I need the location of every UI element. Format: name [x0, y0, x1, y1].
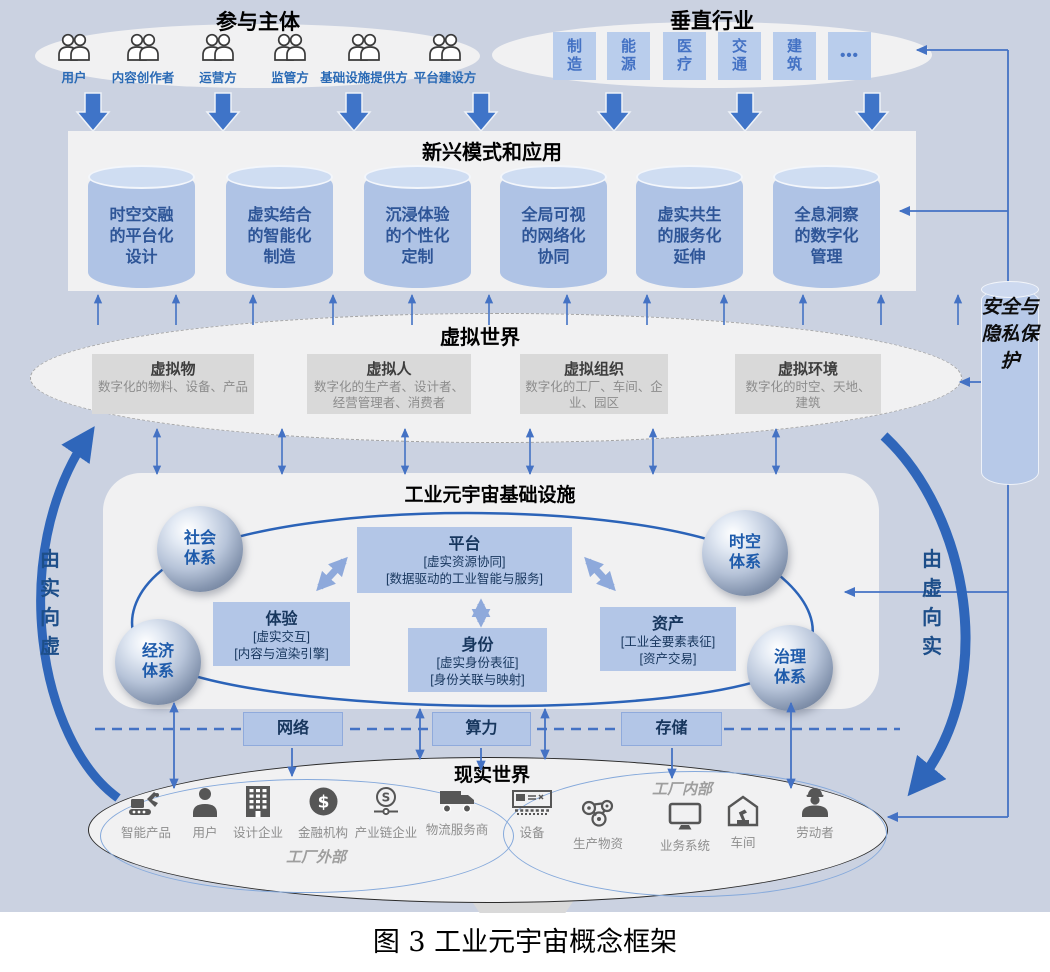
module-title: 身份: [408, 631, 547, 655]
virtual-box-title: 虚拟人: [312, 358, 466, 379]
virtual-box-title: 虚拟物: [97, 358, 249, 379]
industry-box: 交 通: [718, 32, 761, 80]
real-world-item: 智能产品: [114, 787, 178, 841]
virtual-box-desc: 数字化的物料、设备、产品: [97, 379, 249, 395]
industries-title: 垂直行业: [632, 5, 792, 35]
real-world-item: $ 金融机构: [291, 786, 355, 841]
economic-system-sphere: 经济 体系: [115, 619, 201, 705]
building-icon: [245, 785, 271, 817]
real-world-item-label: 物流服务商: [424, 819, 490, 838]
participant-item: 平台建设方: [400, 33, 490, 86]
applications-title: 新兴模式和应用: [392, 136, 592, 165]
worker-icon: [800, 786, 830, 817]
real-world-item: 设备: [499, 789, 565, 841]
coin-icon: $: [308, 786, 339, 817]
application-label: 虚实结合 的智能化 制造: [226, 177, 333, 288]
real-world-item-label: 业务系统: [652, 835, 718, 854]
people-icon: [271, 33, 309, 61]
industry-box: 能 源: [607, 32, 650, 80]
industry-box: 制 造: [553, 32, 596, 80]
excavator-icon: [127, 787, 165, 817]
real-world-item-label: 智能产品: [114, 822, 178, 841]
social-system-sphere: 社会 体系: [157, 506, 243, 592]
storage-box: 存储: [621, 712, 722, 746]
virtual-world-title: 虚拟世界: [390, 321, 570, 350]
people-icon: [124, 33, 162, 61]
machine-icon: [512, 789, 552, 817]
real-world-item-label: 金融机构: [291, 822, 355, 841]
real-world-item-label: 设计企业: [226, 822, 290, 841]
application-label: 时空交融 的平台化 设计: [88, 177, 195, 288]
svg-text:S: S: [382, 791, 391, 805]
application-cylinder: 全息洞察 的数字化 管理: [773, 165, 880, 288]
participants-title: 参与主体: [178, 6, 338, 36]
asset-module: 资产 [工业全要素表征] [资产交易]: [600, 607, 736, 671]
virtual-environment-box: 虚拟环境 数字化的时空、天地、建筑: [735, 354, 881, 414]
cylinder-lid: [226, 165, 333, 189]
truck-icon: [439, 789, 476, 814]
virtual-box-desc: 数字化的生产者、设计者、经营管理者、消费者: [312, 379, 466, 411]
virtual-object-box: 虚拟物 数字化的物料、设备、产品: [92, 354, 254, 414]
real-world-item-label: 设备: [499, 822, 565, 841]
real-world-item: 物流服务商: [424, 789, 490, 838]
application-label: 全局可视 的网络化 协同: [500, 177, 607, 288]
real-world-item: 设计企业: [226, 785, 290, 841]
real-world-item-label: 劳动者: [782, 822, 848, 841]
real-world-item: 业务系统: [652, 802, 718, 854]
virtual-box-desc: 数字化的时空、天地、建筑: [740, 379, 876, 411]
gears-icon: [579, 798, 617, 828]
computing-box: 算力: [432, 712, 531, 746]
people-icon: [426, 33, 464, 61]
module-desc: [虚实交互] [内容与渲染引擎]: [213, 629, 350, 662]
workshop-icon: [726, 794, 760, 827]
network-box: 网络: [243, 712, 343, 746]
application-cylinder: 虚实结合 的智能化 制造: [226, 165, 333, 288]
real-world-item: 劳动者: [782, 786, 848, 841]
application-label: 沉浸体验 的个性化 定制: [364, 177, 471, 288]
platform-module: 平台 [虚实资源协同] [数据驱动的工业智能与服务]: [357, 527, 572, 593]
cylinder-lid: [636, 165, 743, 189]
chain-icon: S: [371, 786, 401, 817]
figure-caption: 图 3 工业元宇宙概念框架: [0, 920, 1050, 959]
cylinder-lid: [364, 165, 471, 189]
security-privacy-label: 安全与隐私保护: [981, 295, 1039, 376]
industry-box: 医 疗: [663, 32, 706, 80]
real-world-item-label: 生产物资: [565, 833, 631, 852]
real-world-item: 生产物资: [565, 798, 631, 852]
module-title: 平台: [357, 530, 572, 554]
participant-label: 平台建设方: [400, 67, 490, 86]
svg-text:$: $: [317, 793, 329, 813]
monitor-icon: [668, 802, 702, 830]
virtual-box-desc: 数字化的工厂、车间、企业、园区: [525, 379, 663, 411]
governance-system-sphere: 治理 体系: [747, 625, 833, 711]
real-to-virtual-label: 由实向虚: [38, 546, 62, 662]
real-world-item: S 产业链企业: [354, 786, 418, 841]
participant-item: 基础设施提供方: [319, 33, 409, 86]
real-world-title: 现实世界: [402, 760, 582, 787]
application-cylinder: 全局可视 的网络化 协同: [500, 165, 607, 288]
module-title: 体验: [213, 605, 350, 629]
cylinder-lid: [500, 165, 607, 189]
industry-box-more: •••: [828, 32, 871, 80]
real-world-item-label: 车间: [710, 832, 776, 851]
infrastructure-title: 工业元宇宙基础设施: [380, 480, 600, 507]
real-world-item: 车间: [710, 794, 776, 851]
module-desc: [工业全要素表征] [资产交易]: [600, 634, 736, 667]
real-world-item-label: 产业链企业: [354, 822, 418, 841]
people-icon: [345, 33, 383, 61]
virtual-box-title: 虚拟组织: [525, 358, 663, 379]
cylinder-lid: [773, 165, 880, 189]
spacetime-system-sphere: 时空 体系: [702, 510, 788, 596]
application-label: 虚实共生 的服务化 延伸: [636, 177, 743, 288]
module-desc: [虚实资源协同] [数据驱动的工业智能与服务]: [357, 554, 572, 587]
experience-module: 体验 [虚实交互] [内容与渲染引擎]: [213, 602, 350, 666]
identity-module: 身份 [虚实身份表征] [身份关联与映射]: [408, 628, 547, 692]
application-label: 全息洞察 的数字化 管理: [773, 177, 880, 288]
application-cylinder: 时空交融 的平台化 设计: [88, 165, 195, 288]
factory-outside-label: 工厂外部: [266, 846, 366, 867]
industry-box: 建 筑: [773, 32, 816, 80]
virtual-organization-box: 虚拟组织 数字化的工厂、车间、企业、园区: [520, 354, 668, 414]
security-privacy-pillar: 安全与隐私保护: [981, 281, 1039, 487]
cylinder-lid: [88, 165, 195, 189]
virtual-box-title: 虚拟环境: [740, 358, 876, 379]
application-cylinder: 沉浸体验 的个性化 定制: [364, 165, 471, 288]
virtual-to-real-label: 由虚向实: [920, 546, 944, 662]
participant-label: 基础设施提供方: [319, 67, 409, 86]
people-icon: [199, 33, 237, 61]
application-cylinder: 虚实共生 的服务化 延伸: [636, 165, 743, 288]
people-icon: [55, 33, 93, 61]
person-icon: [192, 787, 218, 817]
module-title: 资产: [600, 610, 736, 634]
module-desc: [虚实身份表征] [身份关联与映射]: [408, 655, 547, 688]
virtual-human-box: 虚拟人 数字化的生产者、设计者、经营管理者、消费者: [307, 354, 471, 414]
